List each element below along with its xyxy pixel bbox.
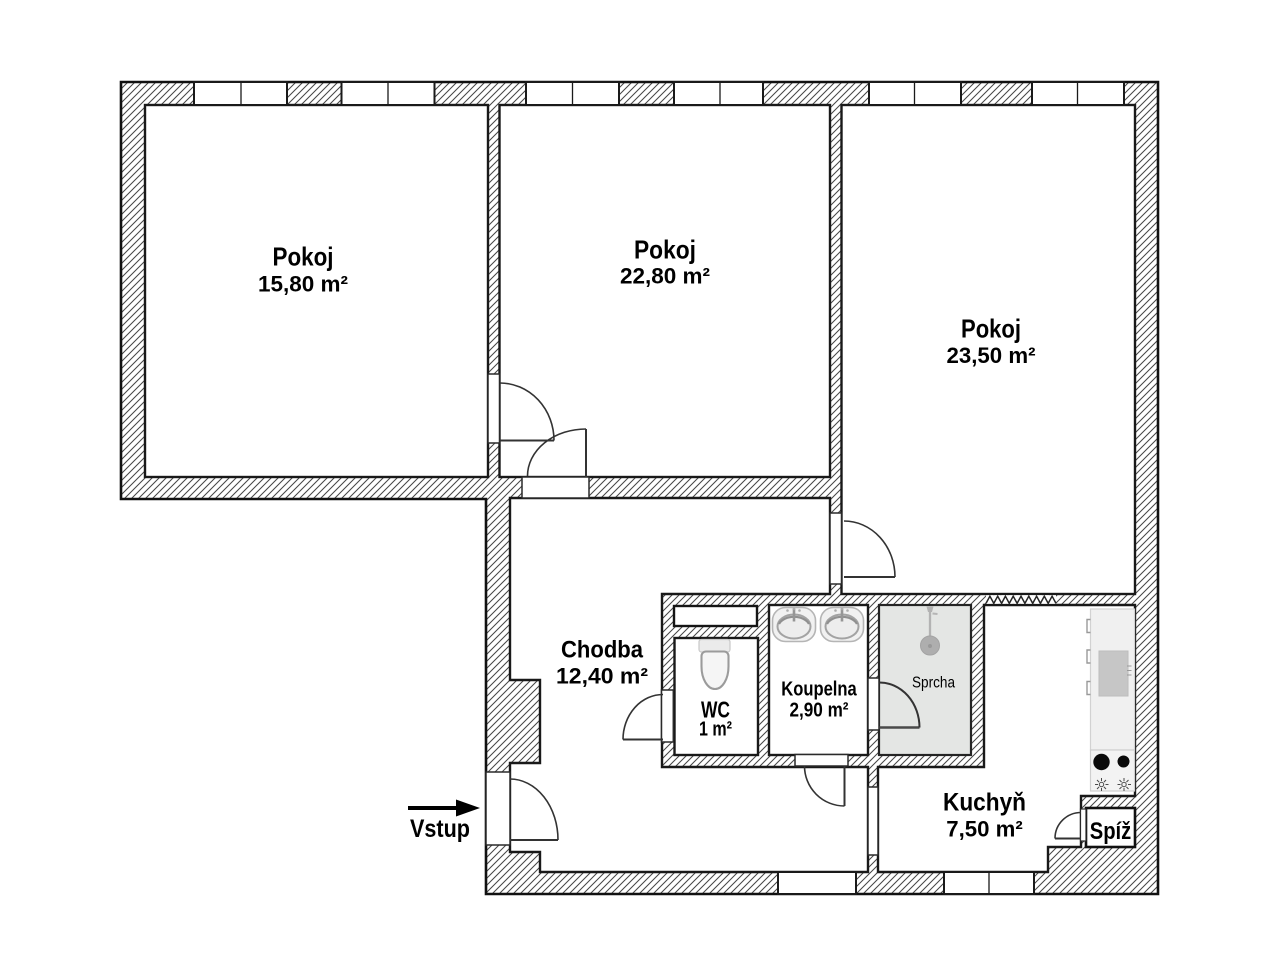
svg-text:Pokoj: Pokoj [961,314,1021,344]
svg-text:15,80 m²: 15,80 m² [258,272,348,297]
svg-text:Koupelna: Koupelna [781,679,857,701]
svg-text:Chodba: Chodba [561,637,644,664]
svg-text:7,50 m²: 7,50 m² [946,817,1023,842]
svg-text:23,50 m²: 23,50 m² [947,343,1036,368]
svg-text:Vstup: Vstup [410,815,470,843]
svg-text:12,40 m²: 12,40 m² [556,664,648,689]
svg-text:Pokoj: Pokoj [634,235,696,265]
svg-text:2,90 m²: 2,90 m² [790,700,849,722]
svg-text:Spíž: Spíž [1090,818,1132,845]
svg-text:1 m²: 1 m² [699,718,732,741]
svg-text:Pokoj: Pokoj [273,242,334,272]
svg-text:Kuchyň: Kuchyň [943,789,1026,817]
svg-text:22,80 m²: 22,80 m² [620,264,710,289]
svg-text:Sprcha: Sprcha [912,675,955,692]
